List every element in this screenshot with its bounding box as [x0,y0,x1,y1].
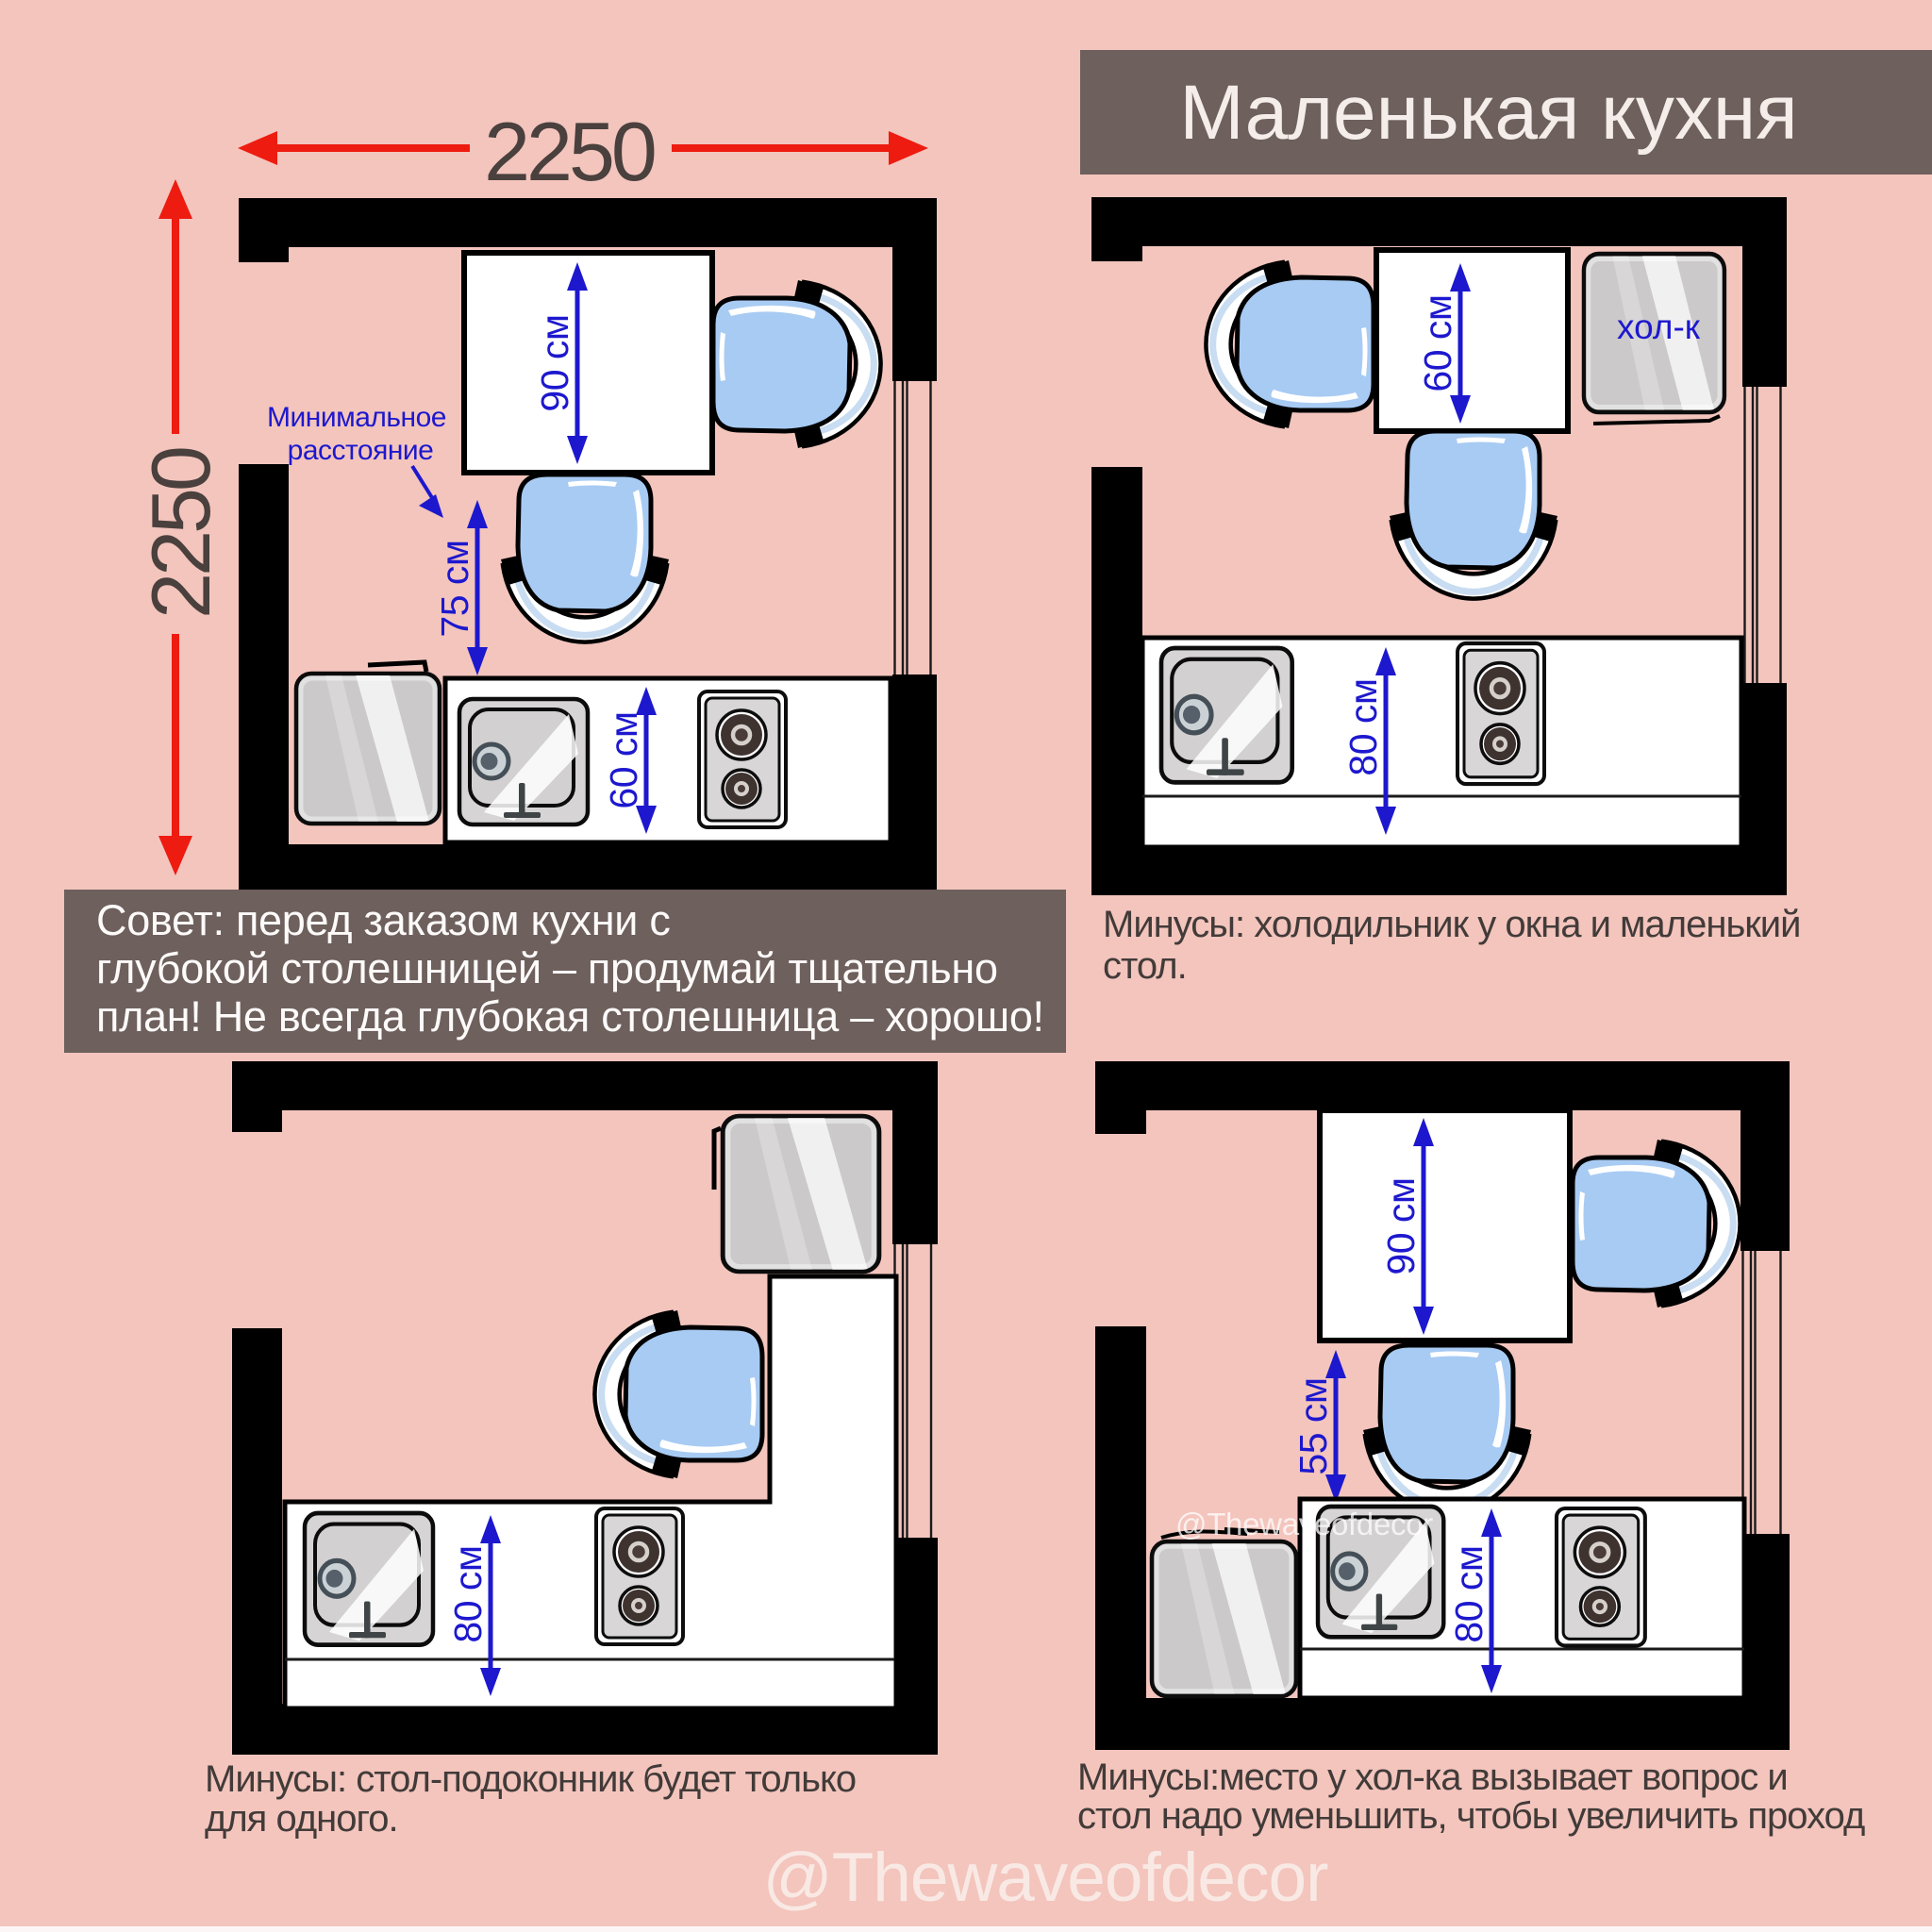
svg-text:55 см: 55 см [1291,1377,1335,1474]
svg-text:90 см: 90 см [533,314,576,411]
svg-text:2250: 2250 [134,448,227,619]
svg-text:Минусы:место у хол-ка вызывает: Минусы:место у хол-ка вызывает вопрос и [1077,1757,1788,1798]
svg-text:стол надо уменьшить, чтобы уве: стол надо уменьшить, чтобы увеличить про… [1077,1795,1865,1837]
svg-text:90 см: 90 см [1379,1177,1423,1274]
svg-text:Минимальное: Минимальное [267,402,446,433]
svg-text:@Thewaveofdecor: @Thewaveofdecor [1175,1507,1433,1541]
svg-text:Минусы: холодильник у окна и м: Минусы: холодильник у окна и маленький [1103,904,1800,945]
svg-text:Маленькая кухня: Маленькая кухня [1179,70,1797,156]
svg-text:@Thewaveofdecor: @Thewaveofdecor [763,1840,1328,1916]
svg-text:80 см: 80 см [1447,1545,1491,1642]
svg-text:60 см: 60 см [602,711,645,808]
svg-text:для одного.: для одного. [205,1798,398,1840]
svg-text:Совет: перед заказом кухни с: Совет: перед заказом кухни с [96,896,671,944]
svg-text:75 см: 75 см [433,540,476,637]
svg-text:стол.: стол. [1103,945,1187,987]
svg-text:глубокой столешницей – продума: глубокой столешницей – продумай тщательн… [96,944,998,992]
svg-text:расстояние: расстояние [288,435,434,466]
svg-text:60 см: 60 см [1416,294,1459,391]
svg-text:хол-к: хол-к [1617,308,1701,346]
svg-text:2250: 2250 [484,105,655,198]
svg-text:Минусы: стол-подоконник будет: Минусы: стол-подоконник будет только [205,1758,856,1800]
svg-text:план! Не всегда глубокая столе: план! Не всегда глубокая столешница – хо… [96,992,1044,1041]
svg-text:80 см: 80 см [446,1545,490,1642]
svg-text:80 см: 80 см [1341,678,1385,775]
